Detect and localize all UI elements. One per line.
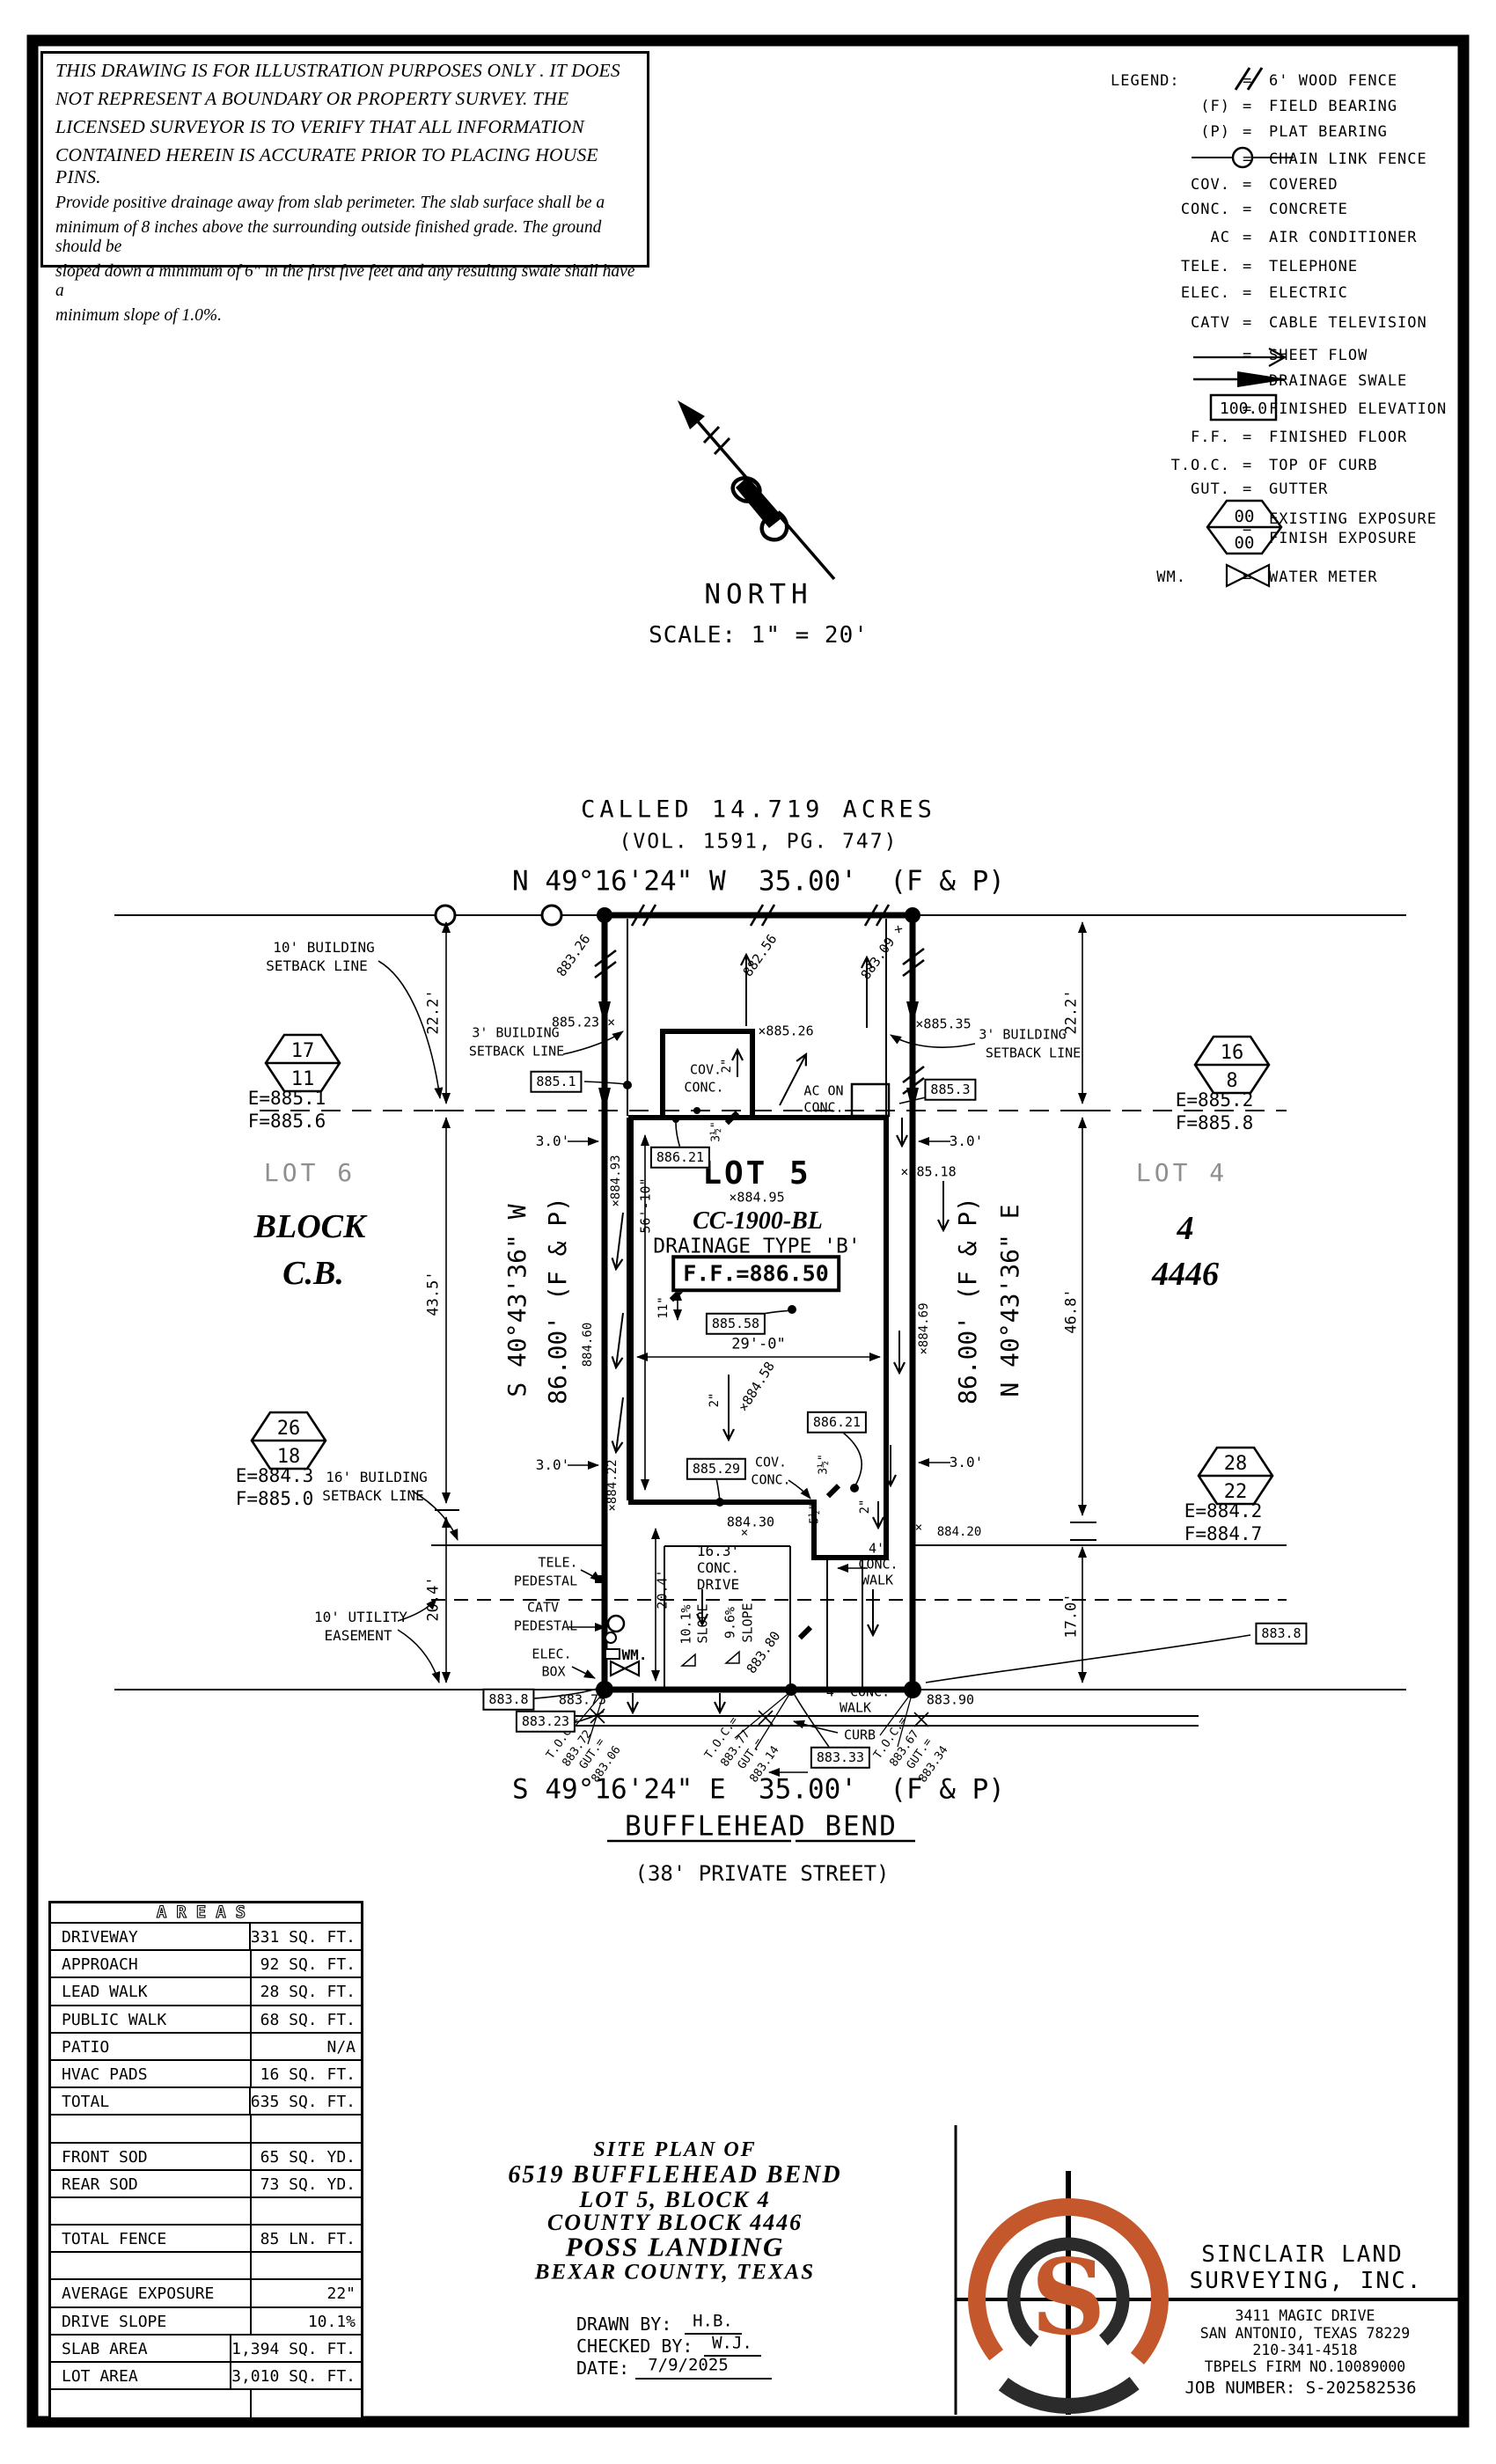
plat-label-19: 2"	[721, 1059, 733, 1074]
legend-row: (P)=PLAT BEARING	[1091, 120, 1478, 144]
areas-row-hvac-pads: HVAC PADS16 SQ. FT.	[51, 2061, 361, 2088]
plat-label-44: 86.00' (F & P)	[546, 1197, 570, 1404]
plat-label-38: 11"	[657, 1296, 670, 1318]
legend-abbr: COV.	[1191, 176, 1230, 194]
elevation-box-4: 885.58	[706, 1313, 766, 1335]
areas-row-lead-walk: LEAD WALK28 SQ. FT.	[51, 1978, 361, 2006]
legend-row: CATV=CABLE TELEVISION	[1091, 311, 1478, 335]
legend-abbr: (F)	[1200, 98, 1230, 115]
plat-label-26: BLOCK	[254, 1210, 366, 1243]
areas-table-title: AREAS	[51, 1903, 361, 1924]
plat-label-24: 3½"	[711, 1121, 722, 1141]
plat-label-0: CALLED 14.719 ACRES	[581, 798, 936, 822]
legend-desc: CONCRETE	[1269, 201, 1348, 218]
areas-row-value: 28 SQ. FT.	[252, 1978, 361, 2004]
elevation-box-9: 883.33	[810, 1747, 870, 1769]
plat-label-64: SETBACK LINE	[322, 1489, 424, 1503]
plat-label-6: 22.2'	[1065, 989, 1080, 1034]
plat-label-56: 5½"	[810, 1503, 821, 1523]
areas-row-label: SLAB AREA	[51, 2336, 231, 2361]
legend-desc: ELECTRIC	[1269, 284, 1348, 302]
firm-address-line-0: 3411 MAGIC DRIVE	[1236, 2309, 1375, 2324]
plat-label-73: BOX	[541, 1666, 565, 1679]
disclaimer-line: Provide positive drainage away from slab…	[43, 188, 647, 213]
legend-row: (F)=FIELD BEARING	[1091, 94, 1478, 119]
legend-title: LEGEND:	[1111, 72, 1180, 90]
plat-label-52: 3.0'	[950, 1456, 984, 1470]
plat-label-86: WALK	[862, 1574, 893, 1588]
plat-label-66: EASEMENT	[324, 1629, 392, 1643]
legend-equals: =	[1243, 520, 1251, 538]
areas-row-value: 22"	[252, 2280, 361, 2306]
legend-row: CONC.=CONCRETE	[1091, 197, 1478, 222]
plat-label-23: 3.0'	[950, 1134, 984, 1148]
plat-label-58: 884.30	[727, 1516, 774, 1529]
plat-label-51: 3.0'	[536, 1458, 570, 1472]
areas-row-value: 92 SQ. FT.	[252, 1951, 361, 1976]
legend-desc: FIELD BEARING	[1269, 98, 1397, 115]
legend-desc: 6' WOOD FENCE	[1269, 72, 1397, 90]
plat-label-41: 884.60	[582, 1323, 594, 1368]
elevation-box-8: 883.23	[516, 1711, 576, 1733]
svg-text:17: 17	[291, 1040, 315, 1062]
areas-row-value: 65 SQ. YD.	[252, 2144, 361, 2169]
plat-label-77: DRIVE	[697, 1578, 739, 1592]
legend-equals: =	[1243, 400, 1251, 418]
areas-row-value	[252, 2390, 361, 2417]
plat-label-25: LOT 6	[264, 1161, 356, 1185]
plat-label-34: DRAINAGE TYPE 'B'	[653, 1237, 860, 1258]
plat-label-90: 883.90	[927, 1694, 974, 1707]
plat-label-48: ×884.69	[918, 1302, 930, 1354]
plat-label-65: 10' UTILITY	[314, 1610, 407, 1624]
plat-label-21: CONC.	[803, 1102, 843, 1115]
plat-label-47: ×885.18	[900, 1166, 956, 1179]
plat-label-22: 3.0'	[536, 1134, 570, 1148]
areas-row-public-walk: PUBLIC WALK68 SQ. FT.	[51, 2006, 361, 2034]
disclaimer-line: sloped down a minimum of 6" in the first…	[43, 257, 647, 301]
plat-label-79: 10.1%	[680, 1604, 693, 1644]
legend-abbr: CATV	[1191, 314, 1230, 332]
areas-row-value	[252, 2116, 361, 2141]
legend-desc: PLAT BEARING	[1269, 123, 1388, 141]
firm-job-number: JOB NUMBER: S-202582536	[1184, 2380, 1416, 2397]
title-field-label-2: DATE:	[576, 2359, 629, 2377]
disclaimer-line: minimum of 8 inches above the surroundin…	[43, 213, 647, 257]
title-field-value-1: W.J.	[712, 2336, 752, 2352]
title-line-0: SITE PLAN OF	[593, 2139, 756, 2160]
legend-row: 100.0=FINISHED ELEVATION	[1091, 397, 1478, 422]
areas-row-approach: APPROACH92 SQ. FT.	[51, 1951, 361, 1978]
plat-label-87: 883.75	[559, 1694, 606, 1707]
areas-row-total: TOTAL635 SQ. FT.	[51, 2088, 361, 2116]
areas-row-drive-slope: DRIVE SLOPE10.1%	[51, 2308, 361, 2336]
legend-equals: =	[1243, 284, 1251, 302]
firm-name-line2: SURVEYING, INC.	[1190, 2270, 1423, 2292]
areas-row-slab-area: SLAB AREA1,394 SQ. FT.	[51, 2336, 361, 2363]
legend-desc: COVERED	[1269, 176, 1338, 194]
disclaimer-lower-text: Provide positive drainage away from slab…	[43, 188, 647, 326]
areas-row-label: TOTAL	[51, 2088, 251, 2114]
plat-label-67: 20.4'	[427, 1576, 442, 1621]
firm-name-line1: SINCLAIR LAND	[1201, 2243, 1404, 2266]
areas-row-front-sod: FRONT SOD65 SQ. YD.	[51, 2144, 361, 2171]
title-line-5: BEXAR COUNTY, TEXAS	[535, 2262, 815, 2284]
areas-row-label: LOT AREA	[51, 2363, 231, 2388]
areas-row-value	[252, 2198, 361, 2224]
plat-label-49: 43.5'	[427, 1271, 442, 1316]
plat-label-18: CONC.	[684, 1082, 723, 1095]
plat-label-88: 4' CONC.	[826, 1686, 890, 1699]
title-field-value-0: H.B.	[693, 2314, 733, 2330]
plat-label-61: 884.20	[937, 1526, 982, 1538]
plat-label-45: N 40°43'36" E	[998, 1204, 1023, 1397]
plat-label-69: PEDESTAL	[514, 1575, 577, 1588]
plat-label-27: C.B.	[282, 1257, 344, 1290]
plat-label-5: 22.2'	[427, 989, 442, 1034]
plat-label-50: 46.8'	[1065, 1288, 1080, 1333]
plat-label-91: CURB	[844, 1729, 876, 1742]
slope-wedges	[682, 1652, 739, 1666]
title-field-label-0: DRAWN BY:	[576, 2315, 671, 2333]
hex-elevations-3: E=884.2 F=884.7	[1184, 1500, 1263, 1546]
scale-label: SCALE: 1" = 20'	[649, 624, 869, 647]
plat-label-75: 16.3'	[697, 1544, 739, 1558]
plat-label-14: SETBACK LINE	[469, 1045, 564, 1059]
areas-row-label: AVERAGE EXPOSURE	[51, 2280, 252, 2306]
firm-address-line-3: TBPELS FIRM NO.10089000	[1205, 2360, 1405, 2375]
legend-abbr: ELEC.	[1181, 284, 1230, 302]
areas-row-label: HVAC PADS	[51, 2061, 252, 2086]
legend-desc: FINISH EXPOSURE	[1269, 530, 1418, 547]
disclaimer-line: THIS DRAWING IS FOR ILLUSTRATION PURPOSE…	[43, 54, 647, 82]
disclaimer-line: NOT REPRESENT A BOUNDARY OR PROPERTY SUR…	[43, 82, 647, 110]
legend-row: 0000=EXISTING EXPOSUREFINISH EXPOSURE	[1091, 517, 1478, 541]
plat-label-10: 885.23 ×	[552, 1016, 615, 1030]
plat-label-53: COV.	[755, 1456, 787, 1470]
legend-desc: FINISHED ELEVATION	[1269, 400, 1447, 418]
plat-label-17: COV.	[690, 1064, 722, 1077]
legend-abbr: (P)	[1200, 123, 1230, 141]
legend-equals: =	[1243, 123, 1251, 141]
areas-row-driveway: DRIVEWAY331 SQ. FT.	[51, 1924, 361, 1951]
areas-row-label	[51, 2198, 252, 2224]
plat-label-84: 4'	[869, 1543, 884, 1556]
plat-label-16: SETBACK LINE	[986, 1047, 1081, 1060]
plat-label-74: WM.	[622, 1648, 648, 1662]
elevation-box-6: 885.29	[686, 1458, 746, 1480]
plat-label-57: 2"	[859, 1500, 871, 1514]
plat-label-30: 4446	[1152, 1258, 1219, 1291]
svg-text:26: 26	[277, 1418, 301, 1440]
legend-equals: =	[1243, 176, 1251, 194]
title-field-value-2: 7/9/2025	[648, 2358, 729, 2374]
legend-equals: =	[1243, 457, 1251, 474]
firm-address-line-2: 210-341-4518	[1252, 2343, 1357, 2358]
legend-abbr: T.O.C.	[1171, 457, 1230, 474]
legend-row: T.O.C.=TOP OF CURB	[1091, 453, 1478, 478]
plat-label-29: 4	[1177, 1212, 1194, 1245]
legend-desc: AIR CONDITIONER	[1269, 229, 1418, 246]
legend-row: LEGEND:=6' WOOD FENCE	[1091, 69, 1478, 93]
plat-label-37: 2"	[708, 1393, 721, 1408]
elevation-box-7: 883.8	[482, 1689, 534, 1711]
legend-row: =CHAIN LINK FENCE	[1091, 147, 1478, 172]
plat-label-60: ×	[915, 1522, 922, 1534]
legend-equals: =	[1243, 568, 1251, 586]
legend-equals: =	[1243, 314, 1251, 332]
plat-label-15: 3' BUILDING	[979, 1029, 1066, 1042]
svg-text:28: 28	[1224, 1453, 1248, 1475]
plat-label-85: CONC.	[858, 1558, 898, 1572]
plat-label-72: ELEC.	[532, 1648, 571, 1661]
legend-row: TELE.=TELEPHONE	[1091, 254, 1478, 279]
legend-desc: CABLE TELEVISION	[1269, 314, 1427, 332]
plat-label-106: (38' PRIVATE STREET)	[635, 1863, 890, 1884]
plat-label-28: LOT 4	[1136, 1161, 1228, 1185]
areas-row-value: N/A	[252, 2034, 361, 2059]
plat-label-31: LOT 5	[702, 1158, 810, 1190]
plat-label-71: PEDESTAL	[514, 1620, 577, 1633]
legend-abbr: AC	[1211, 229, 1230, 246]
plat-label-3: 10' BUILDING	[273, 941, 375, 955]
elevation-box-0: 885.1	[530, 1071, 582, 1093]
legend-row: =DRAINAGE SWALE	[1091, 369, 1478, 393]
legend-desc: DRAINAGE SWALE	[1269, 372, 1407, 390]
plat-label-76: CONC.	[697, 1561, 739, 1575]
areas-row-label: PUBLIC WALK	[51, 2006, 252, 2032]
areas-row-value: 85 LN. FT.	[252, 2226, 361, 2251]
elevation-box-5: 886.21	[807, 1412, 867, 1434]
plat-label-80: SLOPE	[697, 1603, 710, 1643]
plat-label-32: ×884.95	[729, 1192, 784, 1205]
areas-row-rear-sod: REAR SOD73 SQ. YD.	[51, 2171, 361, 2198]
legend-desc: TOP OF CURB	[1269, 457, 1378, 474]
legend-equals: =	[1243, 429, 1251, 446]
legend-desc: WATER METER	[1269, 568, 1378, 586]
plat-label-43: S 40°43'36" W	[505, 1204, 530, 1397]
plat-label-46: 86.00' (F & P)	[956, 1197, 980, 1404]
legend-desc: CHAIN LINK FENCE	[1269, 150, 1427, 168]
leader-dots	[623, 1081, 859, 1507]
areas-row-blank	[51, 2116, 361, 2143]
areas-row-value: 3,010 SQ. FT.	[231, 2363, 361, 2388]
areas-row-value	[252, 2253, 361, 2278]
disclaimer-box: THIS DRAWING IS FOR ILLUSTRATION PURPOSE…	[40, 51, 649, 268]
plat-label-81: 9.6%	[724, 1607, 737, 1639]
water-meter-icon	[611, 1661, 639, 1676]
plat-label-40: ×884.93	[610, 1155, 622, 1206]
title-line-1: 6519 BUFFLEHEAD BEND	[508, 2163, 841, 2188]
areas-row-blank	[51, 2253, 361, 2280]
legend-desc: SHEET FLOW	[1269, 347, 1368, 364]
site-plan-sheet: S THIS DRAWING IS FOR ILLUSTRATION PURPO…	[0, 0, 1496, 2464]
areas-table: AREAS DRIVEWAY331 SQ. FT.APPROACH92 SQ. …	[48, 1901, 363, 2420]
areas-row-value: 10.1%	[252, 2308, 361, 2334]
disclaimer-upper-text: THIS DRAWING IS FOR ILLUSTRATION PURPOSE…	[43, 54, 647, 188]
plat-label-78: 20.4'	[656, 1569, 670, 1609]
legend-equals: =	[1243, 258, 1251, 275]
legend-equals: =	[1243, 229, 1251, 246]
plat-label-55: 3½"	[818, 1454, 830, 1474]
plat-label-12: ×885.35	[915, 1018, 971, 1031]
elevation-box-2: 886.21	[650, 1147, 710, 1169]
plat-label-82: SLOPE	[742, 1602, 755, 1642]
hex-elevations-0: E=885.1 F=885.6	[248, 1087, 326, 1133]
plat-label-104: S 49°16'24" E 35.00' (F & P)	[512, 1777, 1005, 1804]
legend-abbr: F.F.	[1191, 429, 1230, 446]
legend-equals: =	[1243, 372, 1251, 390]
legend-equals: =	[1243, 150, 1251, 168]
areas-row-value: 1,394 SQ. FT.	[231, 2336, 361, 2361]
title-field-label-1: CHECKED BY:	[576, 2337, 693, 2355]
legend-desc: TELEPHONE	[1269, 258, 1358, 275]
areas-row-value: 16 SQ. FT.	[252, 2061, 361, 2086]
legend-row: ELEC.=ELECTRIC	[1091, 281, 1478, 305]
elevation-box-10: 883.8	[1255, 1623, 1307, 1645]
areas-row-lot-area: LOT AREA3,010 SQ. FT.	[51, 2363, 361, 2390]
areas-row-label: APPROACH	[51, 1951, 252, 1976]
areas-row-label	[51, 2390, 252, 2417]
legend-equals: =	[1243, 201, 1251, 218]
legend-row: COV.=COVERED	[1091, 172, 1478, 197]
areas-row-label	[51, 2253, 252, 2278]
legend-desc: FINISHED FLOOR	[1269, 429, 1407, 446]
title-line-4: POSS LANDING	[566, 2233, 785, 2261]
plat-label-1: (VOL. 1591, PG. 747)	[620, 832, 898, 853]
title-line-2: LOT 5, BLOCK 4	[579, 2189, 770, 2211]
plat-label-20: AC ON	[803, 1085, 843, 1098]
areas-row-value: 635 SQ. FT.	[251, 2088, 361, 2114]
legend-equals: =	[1243, 347, 1251, 364]
plat-label-63: 16' BUILDING	[326, 1470, 428, 1485]
hex-elevations-2: E=884.3 F=885.0	[236, 1464, 314, 1511]
plat-label-11: ×885.26	[758, 1025, 813, 1038]
areas-row-value: 331 SQ. FT.	[251, 1924, 361, 1949]
disclaimer-line: CONTAINED HEREIN IS ACCURATE PRIOR TO PL…	[43, 138, 647, 188]
plat-label-89: WALK	[840, 1702, 871, 1715]
areas-row-blank	[51, 2198, 361, 2226]
plat-label-54: CONC.	[751, 1474, 790, 1487]
elevation-box-1: 885.3	[924, 1079, 976, 1101]
areas-row-label: FRONT SOD	[51, 2144, 252, 2169]
plat-label-2: N 49°16'24" W 35.00' (F & P)	[512, 869, 1005, 896]
legend-row: F.F.=FINISHED FLOOR	[1091, 425, 1478, 450]
plat-label-59: ×	[741, 1527, 748, 1539]
plat-label-4: SETBACK LINE	[266, 959, 368, 973]
areas-row-label: DRIVEWAY	[51, 1924, 251, 1949]
plat-label-62: 17.0'	[1065, 1593, 1080, 1638]
legend-equals: =	[1243, 98, 1251, 115]
legend-row: AC=AIR CONDITIONER	[1091, 225, 1478, 250]
legend-equals: =	[1243, 72, 1251, 90]
fence-hash-marks	[595, 905, 924, 1094]
disclaimer-line: minimum slope of 1.0%.	[43, 301, 647, 326]
plat-label-13: 3' BUILDING	[472, 1027, 559, 1040]
plat-label-42: ×884.22	[606, 1459, 619, 1511]
legend-abbr: CONC.	[1181, 201, 1230, 218]
areas-row-total-fence: TOTAL FENCE85 LN. FT.	[51, 2226, 361, 2253]
areas-row-label: LEAD WALK	[51, 1978, 252, 2004]
hex-elevations-1: E=885.2 F=885.8	[1176, 1089, 1254, 1135]
plat-label-33: CC-1900-BL	[693, 1209, 823, 1234]
areas-row-label	[51, 2116, 252, 2141]
areas-row-label: DRIVE SLOPE	[51, 2308, 252, 2334]
legend-row: WM.=WATER METER	[1091, 565, 1478, 590]
plat-label-68: TELE.	[538, 1557, 577, 1570]
areas-row-label: REAR SOD	[51, 2171, 252, 2196]
north-arrow-icon	[678, 400, 834, 579]
areas-row-patio: PATION/A	[51, 2034, 361, 2061]
legend-desc: EXISTING EXPOSURE	[1269, 510, 1437, 528]
svg-text:16: 16	[1221, 1042, 1244, 1064]
disclaimer-line: LICENSED SURVEYOR IS TO VERIFY THAT ALL …	[43, 110, 647, 138]
areas-row-label: PATIO	[51, 2034, 252, 2059]
areas-row-value: 68 SQ. FT.	[252, 2006, 361, 2032]
areas-row-label: TOTAL FENCE	[51, 2226, 252, 2251]
areas-row-blank	[51, 2390, 361, 2417]
plat-label-35: 29'-0"	[731, 1338, 785, 1353]
firm-address-line-1: SAN ANTONIO, TEXAS 78229	[1200, 2327, 1410, 2342]
areas-row-average-exposure: AVERAGE EXPOSURE22"	[51, 2280, 361, 2307]
logo-letter: S	[1030, 2236, 1105, 2358]
north-label: NORTH	[704, 582, 812, 609]
elevation-box-3: F.F.=886.50	[671, 1255, 840, 1292]
areas-row-value: 73 SQ. YD.	[252, 2171, 361, 2196]
plat-label-105: BUFFLEHEAD BEND	[625, 1814, 898, 1841]
plat-label-39: 56'-10"	[640, 1177, 653, 1233]
legend-abbr: TELE.	[1181, 258, 1230, 275]
plat-label-70: CATV	[527, 1602, 559, 1615]
